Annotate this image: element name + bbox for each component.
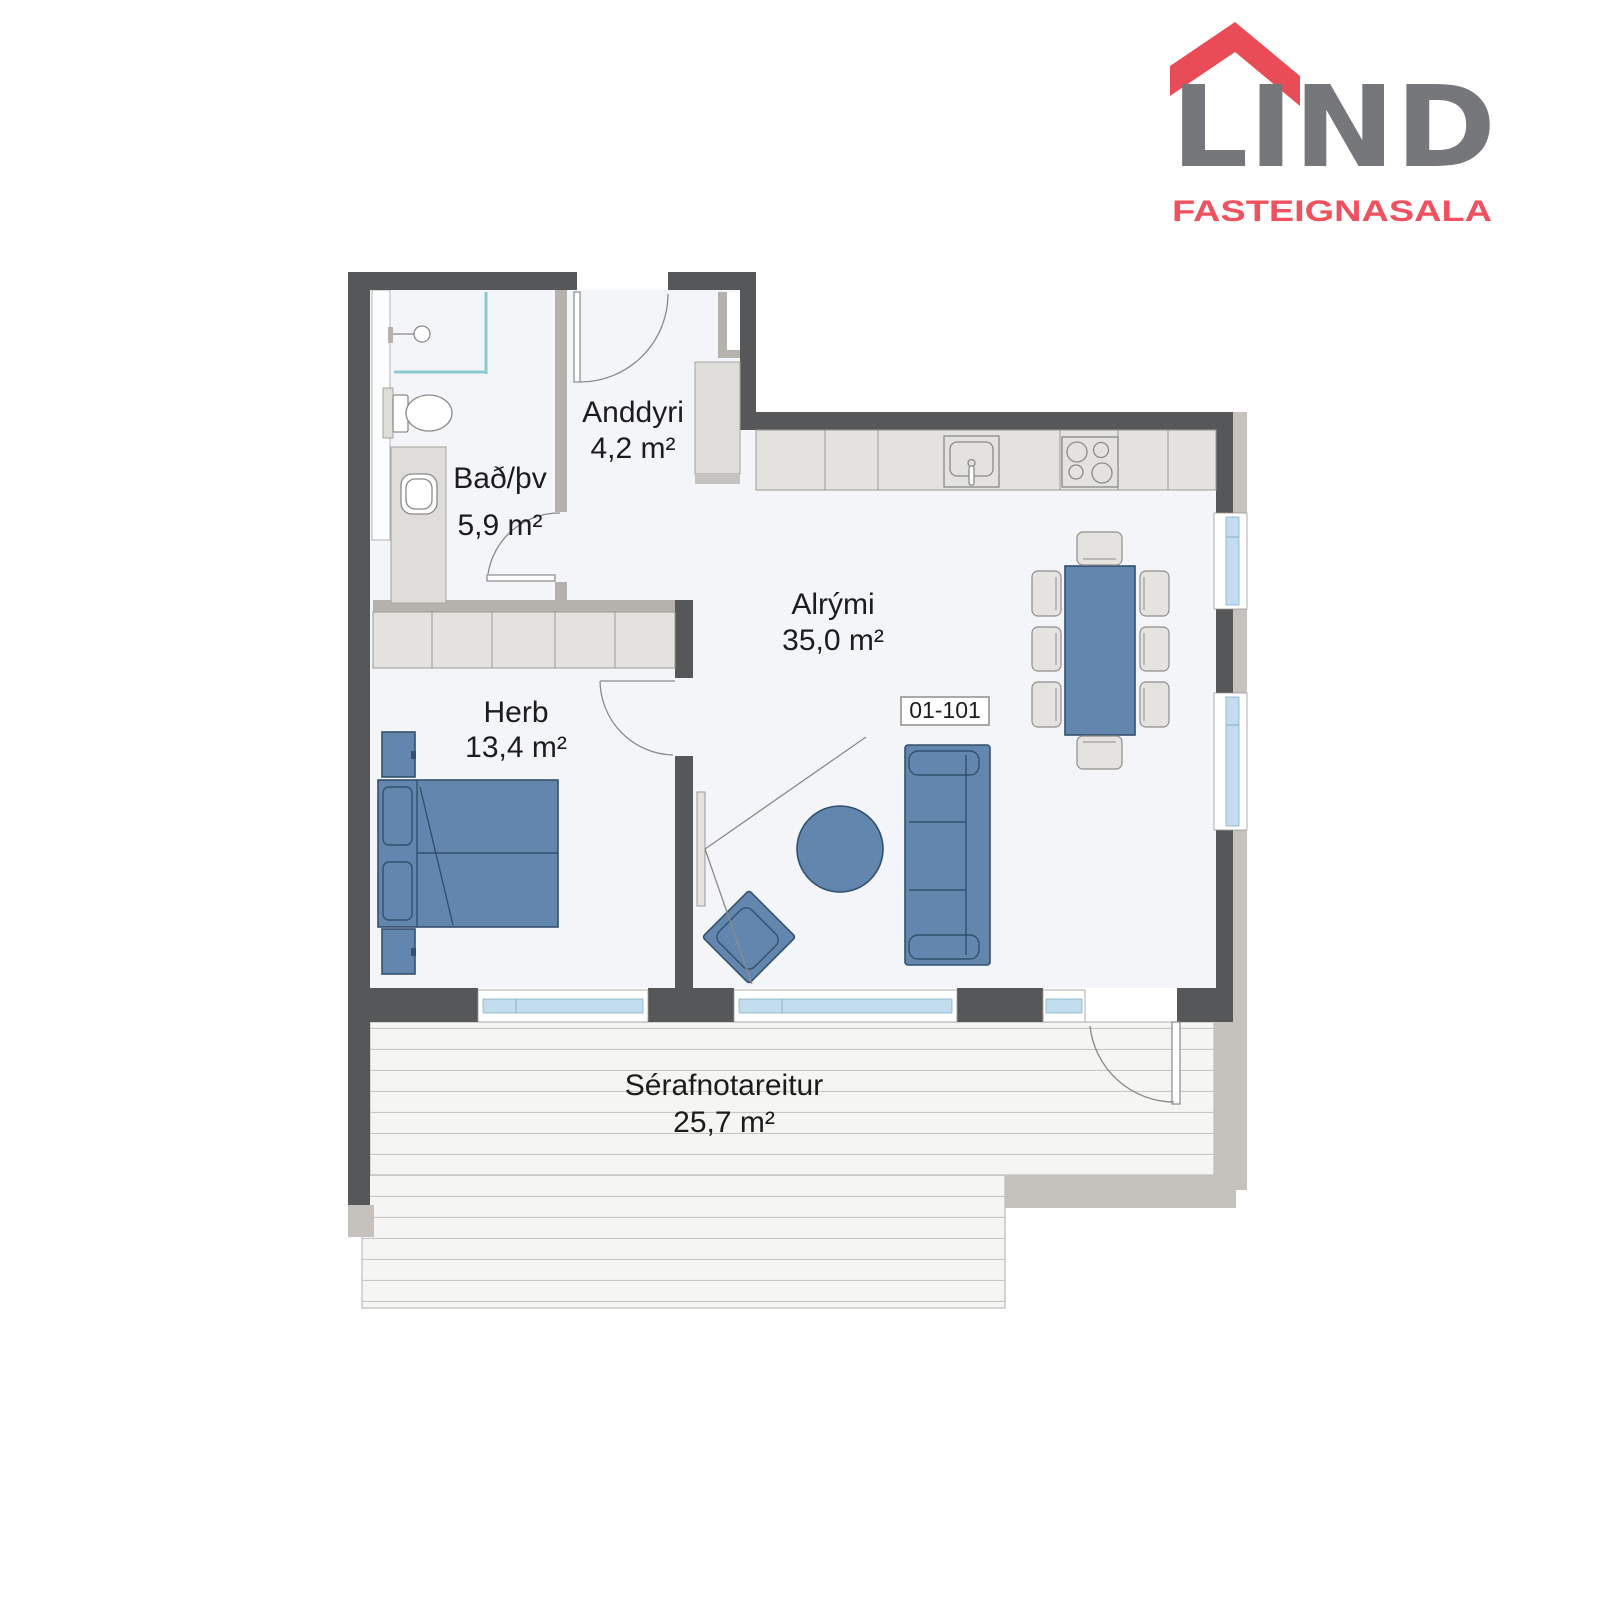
label-bathroom-name: Bað/þv — [453, 462, 546, 495]
nightstand-bottom — [382, 929, 416, 974]
wardrobe — [373, 612, 675, 668]
label-living-name: Alrými — [791, 588, 874, 621]
label-bedroom-name: Herb — [483, 696, 548, 729]
window-living — [734, 990, 957, 1022]
deck-planks-lower — [362, 1175, 1005, 1308]
label-terrace-area: 25,7 m² — [673, 1106, 775, 1139]
brand-logo: LIND FASTEIGNASALA — [1148, 14, 1508, 229]
sofa — [905, 745, 990, 965]
label-terrace-name: Sérafnotareitur — [625, 1069, 823, 1102]
nightstand-top — [382, 732, 416, 777]
terrace-deck — [362, 1022, 1214, 1308]
window-right-2 — [1214, 693, 1247, 830]
window-kitchen — [1043, 990, 1085, 1022]
unit-badge: 01-101 — [901, 697, 989, 725]
coffee-table — [797, 806, 883, 892]
window-bedroom — [478, 990, 648, 1022]
floorplan-page: LIND FASTEIGNASALA — [0, 0, 1600, 1600]
label-entrance-area: 4,2 m² — [590, 432, 675, 465]
washing-machine-icon — [391, 447, 446, 603]
window-right-1 — [1214, 513, 1247, 609]
brand-name: LIND — [1171, 63, 1496, 193]
unit-number: 01-101 — [909, 697, 981, 723]
kitchen — [756, 430, 1216, 490]
brand-tagline: FASTEIGNASALA — [1172, 195, 1492, 228]
label-entrance-name: Anddyri — [582, 396, 684, 429]
bed — [378, 780, 558, 927]
label-living-area: 35,0 m² — [782, 624, 884, 657]
label-bedroom-area: 13,4 m² — [465, 731, 567, 764]
dining-table — [1065, 566, 1135, 735]
entry-closet — [695, 362, 740, 484]
label-bathroom-area: 5,9 m² — [457, 509, 542, 542]
floor-plan: Bað/þv 5,9 m² Anddyri 4,2 m² Alrými 35,0… — [340, 260, 1260, 1320]
